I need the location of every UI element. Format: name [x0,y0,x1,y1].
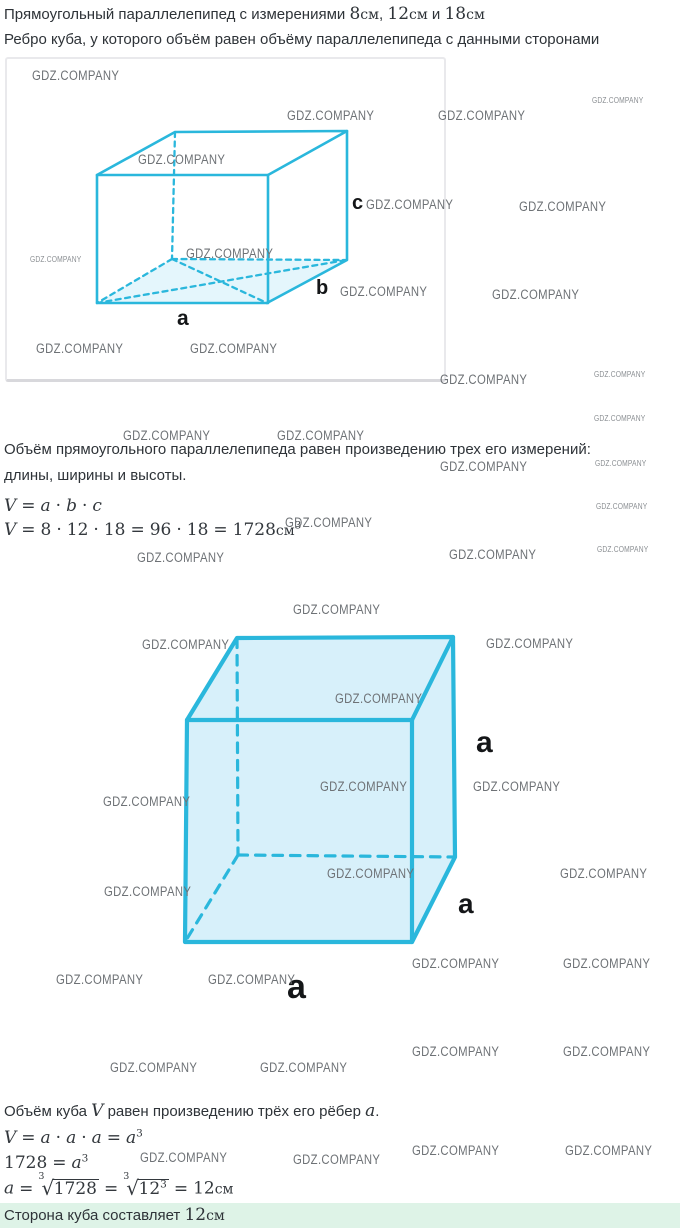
watermark: GDZ.COMPANY [335,691,422,706]
formula-cube-root: a=3√1728=3√123=12см [4,1173,233,1202]
watermark: GDZ.COMPANY [595,459,646,468]
watermark: GDZ.COMPANY [32,68,119,83]
edge-label: a [177,308,189,329]
watermark: GDZ.COMPANY [260,1060,347,1075]
volume-paragraph-line2: длины, ширины и высоты. [4,465,186,487]
watermark: GDZ.COMPANY [597,545,648,554]
edge-label: b [316,278,328,298]
watermark: GDZ.COMPANY [137,550,224,565]
watermark: GDZ.COMPANY [285,515,372,530]
answer-text: Сторона куба составляет 12см [4,1203,225,1228]
answer-banner: Сторона куба составляет 12см [0,1203,680,1228]
watermark: GDZ.COMPANY [440,459,527,474]
watermark: GDZ.COMPANY [563,956,650,971]
watermark: GDZ.COMPANY [293,1152,380,1167]
watermark: GDZ.COMPANY [560,866,647,881]
watermark: GDZ.COMPANY [596,502,647,511]
watermark: GDZ.COMPANY [594,370,645,379]
watermark: GDZ.COMPANY [140,1150,227,1165]
watermark: GDZ.COMPANY [412,1044,499,1059]
watermark: GDZ.COMPANY [30,255,81,264]
watermark: GDZ.COMPANY [412,1143,499,1158]
parallelepiped-figure [7,59,444,379]
edge-label: a [476,728,493,758]
watermark: GDZ.COMPANY [56,972,143,987]
watermark: GDZ.COMPANY [438,108,525,123]
watermark: GDZ.COMPANY [412,956,499,971]
watermark: GDZ.COMPANY [208,972,295,987]
formula-volume-general: V=a·b·c [4,494,102,518]
watermark: GDZ.COMPANY [138,152,225,167]
formula-cube-general: V=a·a·a=a3 [4,1126,143,1150]
edge-label: c [352,193,363,213]
page-root: Прямоугольный параллелепипед с измерения… [0,0,680,1228]
watermark: GDZ.COMPANY [340,284,427,299]
watermark: GDZ.COMPANY [492,287,579,302]
watermark: GDZ.COMPANY [104,884,191,899]
problem-title: Прямоугольный параллелепипед с измерения… [4,3,485,26]
watermark: GDZ.COMPANY [473,779,560,794]
cube-paragraph: Объём куба V равен произведению трёх его… [4,1100,379,1123]
cube-figure [155,612,475,952]
watermark: GDZ.COMPANY [366,197,453,212]
edge-label: a [458,890,474,918]
problem-subtitle: Ребро куба, у которого объём равен объём… [4,29,599,51]
watermark: GDZ.COMPANY [440,372,527,387]
watermark: GDZ.COMPANY [287,108,374,123]
watermark: GDZ.COMPANY [486,636,573,651]
watermark: GDZ.COMPANY [563,1044,650,1059]
formula-volume-computed: V=8·12·18=96·18=1728см3 [4,518,301,543]
watermark: GDZ.COMPANY [186,246,273,261]
watermark: GDZ.COMPANY [594,414,645,423]
watermark: GDZ.COMPANY [592,96,643,105]
watermark: GDZ.COMPANY [293,602,380,617]
watermark: GDZ.COMPANY [142,637,229,652]
watermark: GDZ.COMPANY [190,341,277,356]
watermark: GDZ.COMPANY [320,779,407,794]
figure1-box [5,57,446,382]
watermark: GDZ.COMPANY [110,1060,197,1075]
watermark: GDZ.COMPANY [36,341,123,356]
watermark: GDZ.COMPANY [519,199,606,214]
watermark: GDZ.COMPANY [327,866,414,881]
watermark: GDZ.COMPANY [123,428,210,443]
watermark: GDZ.COMPANY [449,547,536,562]
watermark: GDZ.COMPANY [277,428,364,443]
formula-cube-equation: 1728=a3 [4,1151,88,1175]
watermark: GDZ.COMPANY [565,1143,652,1158]
watermark: GDZ.COMPANY [103,794,190,809]
